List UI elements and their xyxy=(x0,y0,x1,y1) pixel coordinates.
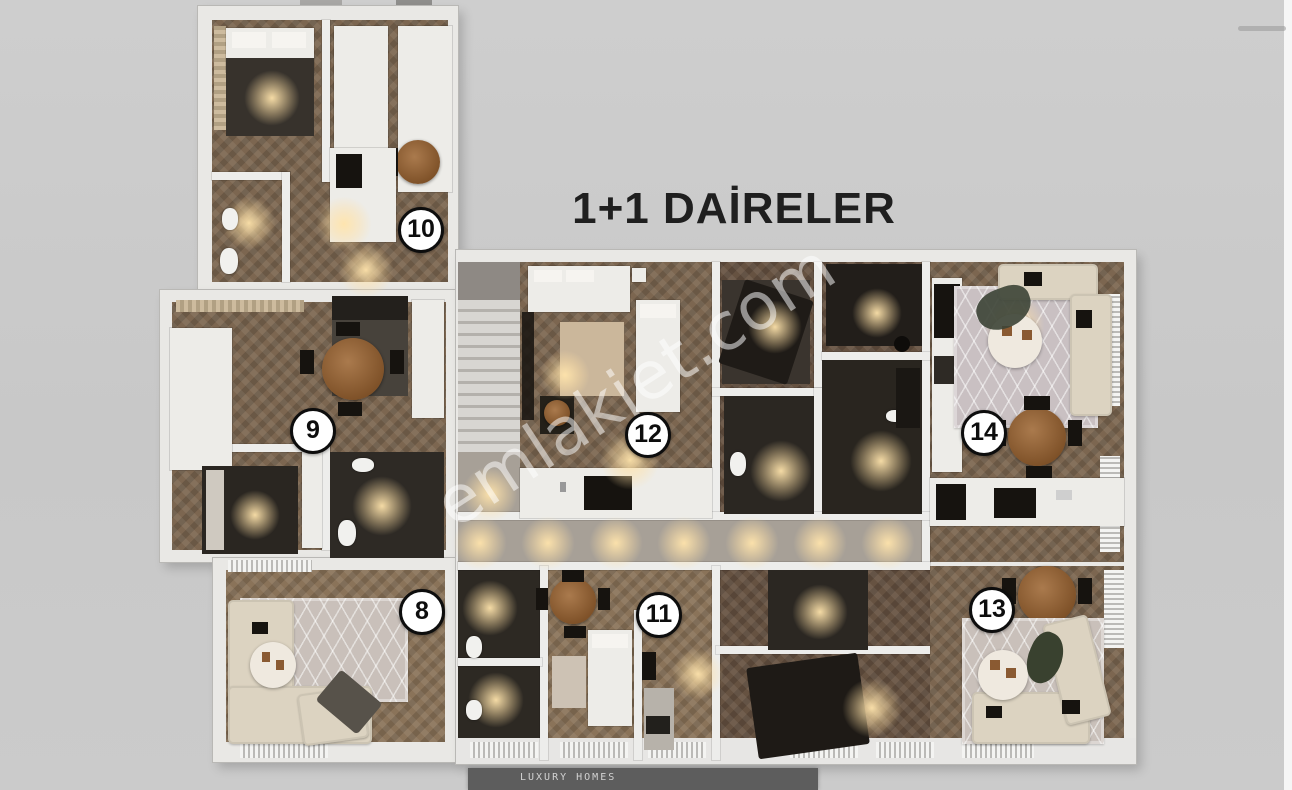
dining-table xyxy=(1008,408,1066,466)
wall xyxy=(712,388,822,396)
chair xyxy=(336,322,360,336)
wardrobe xyxy=(522,312,534,420)
pillow xyxy=(534,270,562,282)
ceiling-light xyxy=(861,516,915,570)
dining-table xyxy=(550,578,596,624)
light-glow xyxy=(792,584,848,640)
pillow xyxy=(986,706,1002,718)
pillow xyxy=(1076,310,1092,328)
balcony-window xyxy=(470,742,538,758)
wall xyxy=(634,610,642,760)
light-glow xyxy=(338,242,394,298)
kitchenette-appliance xyxy=(646,716,670,734)
sink xyxy=(466,700,482,720)
closet xyxy=(214,26,226,130)
shower xyxy=(896,368,920,428)
unit-badge-11: 11 xyxy=(636,592,682,638)
tray xyxy=(990,660,1000,670)
light-glow xyxy=(244,70,300,126)
chair xyxy=(536,588,548,610)
unit-badge-10: 10 xyxy=(398,207,444,253)
pillow xyxy=(252,622,268,634)
kitchen-island-top xyxy=(332,296,408,320)
dining-table xyxy=(1018,566,1076,624)
chair xyxy=(390,350,404,374)
tray xyxy=(276,660,284,670)
chair xyxy=(562,570,584,582)
light-glow xyxy=(852,288,902,338)
ceiling-light xyxy=(793,516,847,570)
coffee-table xyxy=(250,642,296,688)
toilet xyxy=(220,248,238,274)
cooktop xyxy=(336,154,362,188)
unit-badge-12: 12 xyxy=(625,412,671,458)
ceiling-light xyxy=(453,516,507,570)
wall xyxy=(322,20,330,182)
pillow xyxy=(272,32,306,48)
chair xyxy=(564,626,586,638)
stairs xyxy=(458,300,520,452)
smudge xyxy=(1238,26,1286,31)
light-glow xyxy=(230,490,280,540)
chair xyxy=(338,402,362,416)
toilet xyxy=(730,452,746,476)
ceiling-light xyxy=(589,516,643,570)
page-edge xyxy=(1284,0,1292,790)
light-glow xyxy=(540,350,590,400)
pillow xyxy=(640,304,676,318)
sink xyxy=(222,208,238,230)
dining-table xyxy=(322,338,384,400)
plan-title: 1+1 DAİRELER xyxy=(534,184,934,234)
ceiling-light xyxy=(521,516,575,570)
window xyxy=(228,560,312,572)
wall xyxy=(282,172,290,282)
brand-label: LUXURY HOMES xyxy=(468,768,818,784)
light-glow xyxy=(842,678,902,738)
sink xyxy=(352,458,374,472)
tray xyxy=(1022,330,1032,340)
brand-bar: LUXURY HOMES xyxy=(468,768,818,790)
ceiling-light xyxy=(462,466,518,522)
balcony-window xyxy=(962,742,1034,758)
unit-badge-14: 14 xyxy=(961,410,1007,456)
light-glow xyxy=(750,440,812,502)
pillow xyxy=(1024,272,1042,286)
kitchen-counter xyxy=(412,300,444,418)
toilet xyxy=(338,520,356,546)
light-glow xyxy=(850,430,912,492)
pillow xyxy=(592,634,628,648)
floor-plan-rendering: 10 9 12 14 8 11 13 1+1 DAİRELER emlakjet… xyxy=(0,0,1292,790)
unit-badge-9: 9 xyxy=(290,408,336,454)
faucet xyxy=(560,482,566,492)
wardrobe xyxy=(302,452,322,548)
chair xyxy=(1078,578,1092,604)
coffee-table xyxy=(978,650,1028,700)
chair xyxy=(300,350,314,374)
pillow xyxy=(206,470,224,550)
light-glow xyxy=(672,648,724,700)
light-glow xyxy=(748,300,802,354)
unit-badge-13: 13 xyxy=(969,587,1015,633)
closet xyxy=(176,300,304,312)
wall xyxy=(814,262,822,388)
wall xyxy=(212,172,290,180)
ceiling-light xyxy=(657,516,711,570)
tray xyxy=(262,652,270,662)
stair-landing xyxy=(458,262,520,300)
sink xyxy=(1056,490,1072,500)
pillow xyxy=(1062,700,1080,714)
wall xyxy=(322,444,330,550)
chair xyxy=(1068,420,1082,446)
fridge xyxy=(936,484,966,520)
sofa xyxy=(170,328,232,470)
dining-table xyxy=(396,140,440,184)
chair xyxy=(598,588,610,610)
balcony-window xyxy=(560,742,628,758)
rug xyxy=(552,656,586,708)
light-glow xyxy=(352,476,412,536)
tv xyxy=(642,652,656,680)
wall xyxy=(822,352,930,360)
pillow xyxy=(566,270,594,282)
balcony-window xyxy=(240,744,328,758)
pillow xyxy=(232,32,266,48)
chair xyxy=(1024,396,1050,410)
floor-lamp xyxy=(894,336,910,352)
stool xyxy=(544,400,570,426)
toilet xyxy=(466,636,482,658)
balcony-window xyxy=(876,742,934,758)
cooktop xyxy=(994,488,1036,518)
ceiling-light xyxy=(725,516,779,570)
wall xyxy=(458,658,542,666)
nightstand xyxy=(632,268,646,282)
light-glow xyxy=(462,580,518,636)
wall xyxy=(814,388,822,518)
tray xyxy=(1006,668,1016,678)
unit-badge-8: 8 xyxy=(399,589,445,635)
window xyxy=(1104,570,1124,648)
